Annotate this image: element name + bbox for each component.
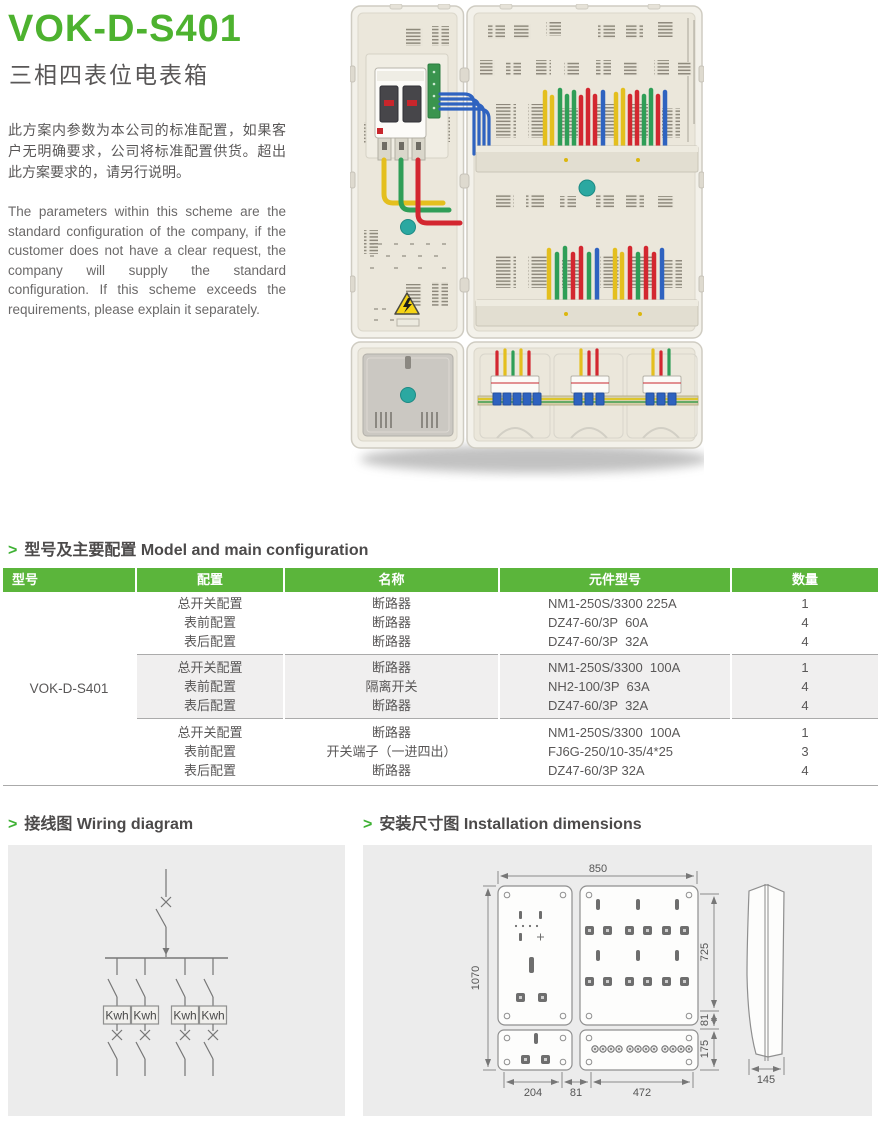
column-header: 名称 — [285, 568, 498, 592]
quantity: 1 — [732, 658, 878, 677]
part-number: NM1-250S/3300 225A — [500, 594, 730, 613]
section-header-dimensions: >安装尺寸图 Installation dimensions — [363, 810, 642, 834]
part-number: NM1-250S/3300 100A — [500, 723, 730, 742]
wiring-diagram-svg: Kwh Kwh Kwh Kwh — [8, 845, 345, 1116]
dim-bottom-right-width: 472 — [633, 1087, 651, 1099]
section-title-zh: 型号及主要配置 — [24, 542, 136, 559]
section-title-en: Wiring diagram — [77, 816, 193, 833]
dim-height-total: 1070 — [470, 966, 482, 990]
quantity: 4 — [732, 696, 878, 715]
meter-label: Kwh — [133, 1009, 156, 1023]
part-number: FJ6G-250/10-35/4*25 — [500, 742, 730, 761]
part-number: NH2-100/3P 63A — [500, 677, 730, 696]
quantity: 1 — [732, 723, 878, 742]
component-name: 断路器 — [285, 594, 498, 613]
model-cell: VOK-D-S401 — [3, 592, 135, 785]
arrow-icon: > — [8, 542, 17, 559]
bottom-left-compartment — [363, 354, 453, 436]
arrow-icon: > — [8, 816, 17, 833]
config-type: 表后配置 — [137, 632, 283, 651]
part-number: DZ47-60/3P 32A — [500, 696, 730, 715]
mini-breakers — [491, 376, 681, 405]
part-number: DZ47-60/3P 32A — [500, 761, 730, 780]
meter-label: Kwh — [173, 1009, 196, 1023]
config-type: 总开关配置 — [137, 723, 283, 742]
quantity: 4 — [732, 677, 878, 696]
dim-bottom-gap: 81 — [570, 1087, 582, 1099]
section-title-zh: 接线图 — [24, 816, 72, 833]
component-name: 断路器 — [285, 696, 498, 715]
section-title-zh: 安装尺寸图 — [379, 816, 459, 833]
dim-height-meter-panel: 725 — [699, 943, 711, 961]
section-title-en: Model and main configuration — [141, 542, 369, 559]
section-title-en: Installation dimensions — [464, 816, 642, 833]
intro-paragraph-en: The parameters within this scheme are th… — [8, 202, 286, 319]
config-type: 表前配置 — [137, 613, 283, 632]
quantity: 4 — [732, 632, 878, 651]
feed-arrow — [163, 948, 170, 955]
config-group-2: 总开关配置 表前配置 表后配置 断路器 隔离开关 断路器 NM1-250S/33… — [137, 654, 878, 719]
component-name: 隔离开关 — [285, 677, 498, 696]
part-number: NM1-250S/3300 100A — [500, 658, 730, 677]
installation-dimensions-panel: 850 1070 725 81 175 204 81 472 145 — [363, 845, 872, 1116]
wiring-diagram-panel: Kwh Kwh Kwh Kwh — [8, 845, 345, 1116]
quantity: 4 — [732, 761, 878, 780]
table-header-row: 型号 配置 名称 元件型号 数量 — [3, 568, 878, 592]
component-name: 断路器 — [285, 658, 498, 677]
dim-width-total: 850 — [589, 863, 607, 875]
column-header: 数量 — [732, 568, 878, 592]
quantity: 4 — [732, 613, 878, 632]
intro-paragraph-zh: 此方案内参数为本公司的标准配置，如果客户无明确要求，公司将标准配置供货。超出此方… — [8, 120, 286, 183]
config-type: 总开关配置 — [137, 594, 283, 613]
meter-label: Kwh — [105, 1009, 128, 1023]
config-group-1: 总开关配置 表前配置 表后配置 断路器 断路器 断路器 NM1-250S/330… — [137, 592, 878, 654]
component-name: 断路器 — [285, 632, 498, 651]
configuration-table: 型号 配置 名称 元件型号 数量 VOK-D-S401 总开关配置 表前配置 表… — [3, 568, 878, 786]
quantity: 1 — [732, 594, 878, 613]
part-number: DZ47-60/3P 32A — [500, 632, 730, 651]
config-type: 表后配置 — [137, 761, 283, 780]
photo-shadow — [360, 445, 704, 473]
meter-box-illustration — [350, 4, 704, 496]
part-number: DZ47-60/3P 60A — [500, 613, 730, 632]
label-strip — [397, 319, 419, 326]
side-view — [747, 884, 784, 1061]
meter-label: Kwh — [201, 1009, 224, 1023]
dim-depth: 145 — [757, 1074, 775, 1086]
column-header: 元件型号 — [500, 568, 730, 592]
arrow-icon: > — [363, 816, 372, 833]
section-header-wiring: >接线图 Wiring diagram — [8, 810, 193, 834]
page-title: VOK-D-S401 — [8, 8, 242, 52]
seal-button-right — [579, 180, 595, 196]
quantity: 3 — [732, 742, 878, 761]
component-name: 开关端子（一进四出） — [285, 742, 498, 761]
product-photo — [350, 4, 704, 496]
config-type: 表前配置 — [137, 677, 283, 696]
config-type: 表前配置 — [137, 742, 283, 761]
installation-dimensions-svg: 850 1070 725 81 175 204 81 472 145 — [363, 845, 872, 1116]
seal-button — [401, 220, 416, 235]
column-header: 配置 — [137, 568, 283, 592]
config-type: 总开关配置 — [137, 658, 283, 677]
main-breaker-symbol — [156, 869, 171, 957]
dim-gap: 81 — [699, 1014, 711, 1026]
component-name: 断路器 — [285, 723, 498, 742]
config-type: 表后配置 — [137, 696, 283, 715]
section-header-config: >型号及主要配置 Model and main configuration — [8, 536, 368, 560]
product-datasheet-page: { "page": { "title": "VOK-D-S401", "subt… — [0, 0, 880, 1124]
component-name: 断路器 — [285, 613, 498, 632]
config-groups: 总开关配置 表前配置 表后配置 断路器 断路器 断路器 NM1-250S/330… — [135, 592, 878, 785]
dim-bottom-row-height: 175 — [699, 1040, 711, 1058]
dim-bottom-left-width: 204 — [524, 1087, 542, 1099]
component-name: 断路器 — [285, 761, 498, 780]
page-subtitle: 三相四表位电表箱 — [9, 56, 209, 90]
column-header: 型号 — [3, 568, 135, 592]
seal-button-bottom — [401, 388, 416, 403]
config-group-3: 总开关配置 表前配置 表后配置 断路器 开关端子（一进四出） 断路器 NM1-2… — [137, 719, 878, 785]
